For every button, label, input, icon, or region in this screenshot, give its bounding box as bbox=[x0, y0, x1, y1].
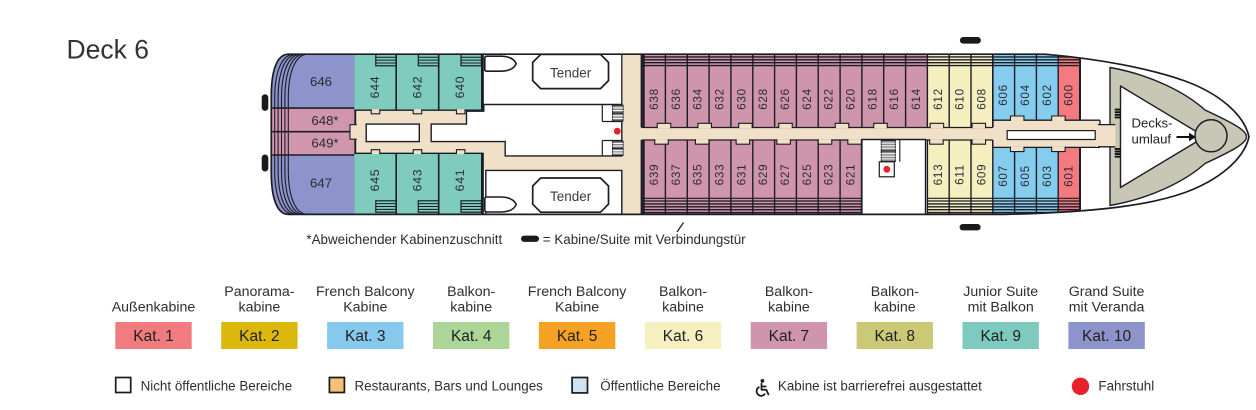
svg-text:Kat. 7: Kat. 7 bbox=[769, 328, 810, 345]
svg-text:umlauf: umlauf bbox=[1132, 132, 1172, 147]
svg-text:kabine: kabine bbox=[874, 300, 916, 316]
svg-text:Tender: Tender bbox=[550, 66, 592, 81]
svg-text:Kabine: Kabine bbox=[343, 300, 387, 316]
svg-text:Balkon-: Balkon- bbox=[765, 284, 813, 300]
svg-text:Kat. 3: Kat. 3 bbox=[345, 328, 386, 345]
svg-text:607: 607 bbox=[997, 165, 1010, 187]
svg-text:600: 600 bbox=[1063, 84, 1076, 106]
svg-text:629: 629 bbox=[757, 164, 770, 186]
svg-text:602: 602 bbox=[1041, 84, 1054, 106]
svg-text:641: 641 bbox=[453, 169, 467, 192]
svg-text:Außenkabine: Außenkabine bbox=[112, 300, 196, 316]
svg-text:mit Balkon: mit Balkon bbox=[968, 300, 1034, 316]
svg-text:616: 616 bbox=[888, 88, 901, 110]
svg-text:605: 605 bbox=[1019, 165, 1032, 187]
svg-text:Kat. 5: Kat. 5 bbox=[557, 328, 598, 345]
svg-text:624: 624 bbox=[801, 88, 814, 110]
svg-text:kabine: kabine bbox=[450, 300, 492, 316]
svg-text:645: 645 bbox=[368, 169, 382, 192]
svg-text:612: 612 bbox=[932, 88, 945, 110]
svg-text:Kabine: Kabine bbox=[555, 300, 599, 316]
svg-text:644: 644 bbox=[368, 76, 382, 99]
svg-text:Balkon-: Balkon- bbox=[659, 284, 707, 300]
svg-text:627: 627 bbox=[779, 164, 792, 186]
svg-text:630: 630 bbox=[735, 88, 748, 110]
svg-text:606: 606 bbox=[997, 84, 1010, 106]
svg-text:626: 626 bbox=[779, 88, 792, 110]
svg-text:604: 604 bbox=[1019, 84, 1032, 106]
svg-text:648*: 648* bbox=[311, 113, 338, 128]
svg-text:614: 614 bbox=[910, 88, 923, 110]
svg-text:639: 639 bbox=[648, 164, 661, 186]
svg-text:Öffentliche Bereiche: Öffentliche Bereiche bbox=[600, 378, 720, 393]
svg-text:628: 628 bbox=[757, 88, 770, 110]
svg-text:620: 620 bbox=[845, 88, 858, 110]
svg-text:608: 608 bbox=[975, 88, 988, 110]
svg-text:621: 621 bbox=[845, 164, 858, 186]
svg-text:Kabine ist barrierefrei ausges: Kabine ist barrierefrei ausgestattet bbox=[778, 378, 982, 393]
svg-text:642: 642 bbox=[410, 76, 424, 99]
svg-text:634: 634 bbox=[692, 88, 705, 110]
svg-text:Grand Suite: Grand Suite bbox=[1069, 284, 1145, 300]
svg-text:643: 643 bbox=[410, 169, 424, 192]
svg-text:636: 636 bbox=[670, 88, 683, 110]
svg-text:kabine: kabine bbox=[768, 300, 810, 316]
svg-text:Kat. 2: Kat. 2 bbox=[239, 328, 280, 345]
svg-text:mit Veranda: mit Veranda bbox=[1069, 300, 1145, 316]
svg-text:Balkon-: Balkon- bbox=[447, 284, 495, 300]
svg-text:631: 631 bbox=[735, 164, 748, 186]
svg-text:618: 618 bbox=[866, 88, 879, 110]
svg-text:Kat. 8: Kat. 8 bbox=[875, 328, 916, 345]
svg-text:Restaurants, Bars und Lounges: Restaurants, Bars und Lounges bbox=[355, 378, 544, 393]
svg-text:635: 635 bbox=[692, 164, 705, 186]
svg-text:647: 647 bbox=[310, 176, 332, 191]
svg-text:610: 610 bbox=[954, 88, 967, 110]
svg-text:French Balcony: French Balcony bbox=[528, 284, 627, 300]
svg-text:Tender: Tender bbox=[550, 189, 592, 204]
svg-text:Decks-: Decks- bbox=[1132, 116, 1173, 131]
svg-text:611: 611 bbox=[954, 164, 967, 185]
svg-text:= Kabine/Suite mit Verbindungs: = Kabine/Suite mit Verbindungstür bbox=[543, 232, 746, 247]
svg-text:Fahrstuhl: Fahrstuhl bbox=[1098, 378, 1154, 393]
svg-text:638: 638 bbox=[648, 88, 661, 110]
svg-text:633: 633 bbox=[714, 164, 727, 186]
svg-text:Kat. 9: Kat. 9 bbox=[980, 328, 1021, 345]
svg-text:Kat. 10: Kat. 10 bbox=[1082, 328, 1131, 345]
svg-text:637: 637 bbox=[670, 164, 683, 186]
svg-text:646: 646 bbox=[310, 74, 332, 89]
svg-text:Nicht öffentliche Bereiche: Nicht öffentliche Bereiche bbox=[141, 378, 293, 393]
svg-text:601: 601 bbox=[1063, 165, 1076, 187]
svg-text:632: 632 bbox=[714, 88, 727, 110]
svg-text:kabine: kabine bbox=[662, 300, 704, 316]
svg-text:Panorama-: Panorama- bbox=[224, 284, 294, 300]
svg-text:622: 622 bbox=[823, 88, 836, 110]
svg-text:Junior Suite: Junior Suite bbox=[963, 284, 1038, 300]
svg-text:Deck 6: Deck 6 bbox=[67, 35, 149, 65]
svg-text:625: 625 bbox=[801, 164, 814, 186]
svg-text:613: 613 bbox=[932, 164, 945, 186]
svg-text:kabine: kabine bbox=[238, 300, 280, 316]
svg-text:French Balcony: French Balcony bbox=[316, 284, 415, 300]
svg-text:Kat. 4: Kat. 4 bbox=[451, 328, 492, 345]
svg-text:Balkon-: Balkon- bbox=[871, 284, 919, 300]
svg-text:623: 623 bbox=[823, 164, 836, 186]
svg-text:649*: 649* bbox=[311, 136, 338, 151]
svg-text:603: 603 bbox=[1041, 165, 1054, 187]
svg-text:Kat. 1: Kat. 1 bbox=[133, 328, 174, 345]
svg-text:640: 640 bbox=[453, 76, 467, 99]
svg-text:609: 609 bbox=[975, 164, 988, 186]
svg-text:*Abweichender Kabinenzuschnitt: *Abweichender Kabinenzuschnitt bbox=[306, 232, 502, 247]
svg-text:Kat. 6: Kat. 6 bbox=[663, 328, 704, 345]
